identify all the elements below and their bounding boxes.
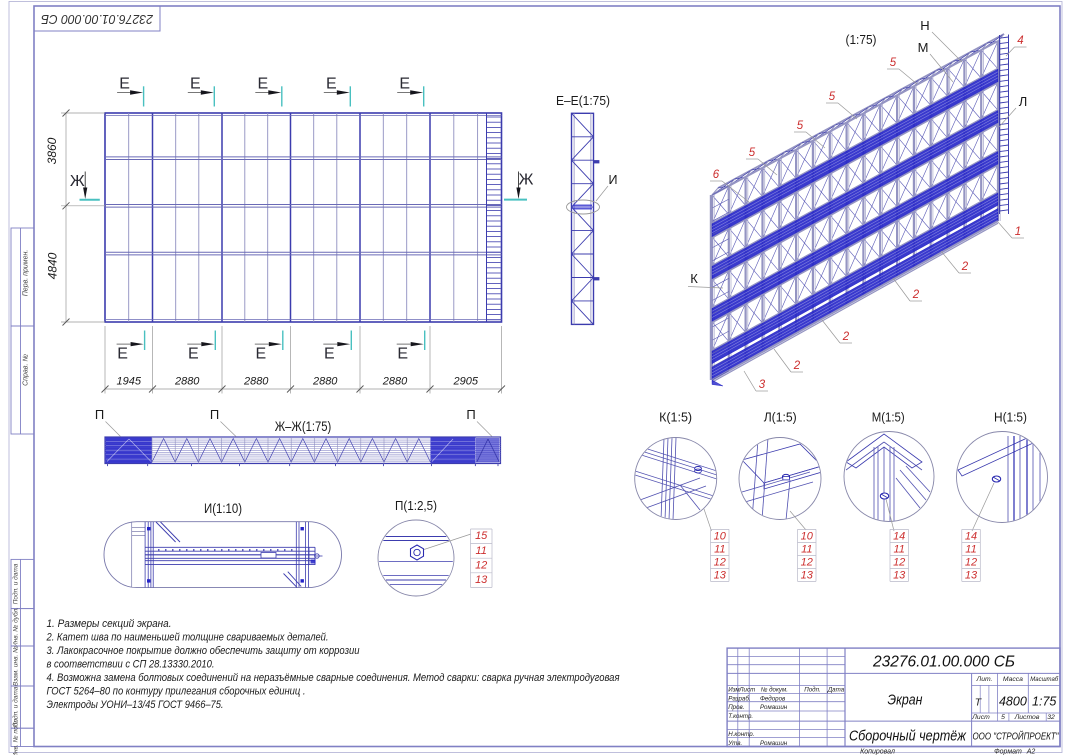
svg-text:12: 12 <box>965 557 977 569</box>
svg-text:П(1:2,5): П(1:2,5) <box>395 498 437 513</box>
svg-text:в соответствии с СП 28.13330.: в соответствии с СП 28.13330.2010. <box>47 659 215 671</box>
svg-text:П: П <box>95 407 104 422</box>
svg-text:Ж–Ж(1:75): Ж–Ж(1:75) <box>275 419 332 434</box>
svg-text:14: 14 <box>893 531 905 543</box>
svg-text:Справ. №: Справ. № <box>23 354 30 386</box>
svg-text:Ж: Ж <box>70 173 85 190</box>
svg-text:3: 3 <box>759 379 766 391</box>
svg-text:1: 1 <box>1015 226 1021 238</box>
svg-text:13: 13 <box>801 570 814 582</box>
svg-text:6: 6 <box>713 169 720 181</box>
svg-text:2: 2 <box>842 331 850 343</box>
svg-text:10: 10 <box>714 531 727 543</box>
svg-text:Взам. инв. №: Взам. инв. № <box>13 646 20 686</box>
svg-text:Федоров: Федоров <box>760 695 786 702</box>
svg-text:23276.01.00.000 СБ: 23276.01.00.000 СБ <box>41 12 154 26</box>
svg-text:14: 14 <box>965 531 977 543</box>
svg-text:Лист: Лист <box>738 686 755 693</box>
svg-text:Разраб.: Разраб. <box>728 695 750 702</box>
svg-text:Е: Е <box>190 76 201 93</box>
svg-text:5: 5 <box>829 91 836 103</box>
svg-text:12: 12 <box>475 559 487 571</box>
svg-text:4840: 4840 <box>46 252 60 279</box>
svg-text:Л: Л <box>1019 94 1028 109</box>
svg-text:Н: Н <box>920 18 929 33</box>
svg-text:23276.01.00.000 СБ: 23276.01.00.000 СБ <box>872 654 1015 671</box>
svg-text:Е: Е <box>326 76 337 93</box>
svg-text:ГОСТ 5264–80 по контуру прилег: ГОСТ 5264–80 по контуру прилегания сборо… <box>47 686 306 698</box>
svg-text:3. Лакокрасочное покрытие долж: 3. Лакокрасочное покрытие должно обеспеч… <box>47 645 360 657</box>
svg-text:3860: 3860 <box>45 137 59 164</box>
svg-text:11: 11 <box>965 544 976 556</box>
svg-text:Ромашин: Ромашин <box>760 740 788 747</box>
svg-text:5: 5 <box>749 147 756 159</box>
svg-text:Лист: Лист <box>971 714 990 721</box>
svg-text:13: 13 <box>714 570 727 582</box>
svg-text:А2: А2 <box>1026 749 1036 755</box>
svg-text:П: П <box>210 407 219 422</box>
svg-text:(1:75): (1:75) <box>846 32 877 47</box>
svg-text:11: 11 <box>714 544 725 556</box>
svg-text:Листов: Листов <box>1014 714 1040 721</box>
svg-text:Подп. и дата: Подп. и дата <box>12 563 20 604</box>
svg-text:И: И <box>609 173 618 187</box>
svg-text:13: 13 <box>475 574 488 586</box>
svg-text:32: 32 <box>1047 714 1055 721</box>
svg-text:Н(1:5): Н(1:5) <box>994 410 1027 425</box>
svg-text:М(1:5): М(1:5) <box>872 410 905 425</box>
svg-text:11: 11 <box>475 545 486 557</box>
svg-text:12: 12 <box>714 557 726 569</box>
svg-text:4: 4 <box>1017 35 1023 47</box>
svg-text:2: 2 <box>912 289 920 301</box>
svg-text:12: 12 <box>801 557 813 569</box>
svg-text:Электроды УОНИ–13/45 ГОСТ 9466: Электроды УОНИ–13/45 ГОСТ 9466–75. <box>47 699 224 711</box>
svg-text:1. Размеры секций экрана.: 1. Размеры секций экрана. <box>47 618 172 630</box>
svg-text:Подп.: Подп. <box>804 686 820 693</box>
svg-text:Масштаб: Масштаб <box>1030 675 1059 683</box>
svg-text:Е: Е <box>255 346 266 363</box>
svg-text:Е: Е <box>399 76 410 93</box>
svg-text:2880: 2880 <box>174 376 200 388</box>
svg-text:ООО "СТРОЙПРОЕКТ": ООО "СТРОЙПРОЕКТ" <box>973 730 1060 743</box>
svg-text:2: 2 <box>961 261 969 273</box>
svg-text:11: 11 <box>893 544 904 556</box>
svg-text:Е: Е <box>188 346 199 363</box>
svg-text:Утв.: Утв. <box>727 740 742 747</box>
svg-text:Ж: Ж <box>519 172 534 189</box>
svg-text:М: М <box>918 40 929 55</box>
svg-text:Масса: Масса <box>1003 676 1023 683</box>
svg-text:2880: 2880 <box>382 376 408 388</box>
svg-text:4800: 4800 <box>999 695 1027 709</box>
svg-text:13: 13 <box>893 570 906 582</box>
svg-text:2: 2 <box>793 360 801 372</box>
svg-text:5: 5 <box>1001 714 1005 721</box>
svg-text:Копировал: Копировал <box>860 749 895 755</box>
svg-text:Е: Е <box>257 76 268 93</box>
svg-text:Е: Е <box>117 346 128 363</box>
svg-text:Е: Е <box>324 346 335 363</box>
svg-text:15: 15 <box>475 530 488 542</box>
svg-text:11: 11 <box>801 544 812 556</box>
svg-text:10: 10 <box>801 531 814 543</box>
svg-text:5: 5 <box>797 120 804 132</box>
svg-text:Е: Е <box>397 346 408 363</box>
svg-text:П: П <box>466 407 475 422</box>
svg-text:Л(1:5): Л(1:5) <box>764 410 797 425</box>
svg-text:Лит.: Лит. <box>976 676 993 683</box>
svg-text:Ромашин: Ромашин <box>760 704 788 711</box>
svg-text:Экран: Экран <box>888 692 923 709</box>
svg-text:4. Возможна замена болтовых со: 4. Возможна замена болтовых соединений н… <box>47 672 620 684</box>
svg-text:К(1:5): К(1:5) <box>659 410 692 425</box>
svg-text:Е: Е <box>119 76 130 93</box>
svg-text:Перв. примен.: Перв. примен. <box>23 250 30 297</box>
svg-text:Формат: Формат <box>994 749 1022 755</box>
svg-text:Е–Е(1:75): Е–Е(1:75) <box>556 93 610 108</box>
svg-text:2880: 2880 <box>243 376 269 388</box>
svg-text:1:75: 1:75 <box>1032 695 1056 709</box>
svg-text:К: К <box>690 271 698 286</box>
svg-text:5: 5 <box>890 57 897 69</box>
svg-text:Т.контр.: Т.контр. <box>728 713 753 720</box>
svg-text:Сборочный чертёж: Сборочный чертёж <box>849 728 967 745</box>
svg-text:Дата: Дата <box>827 686 845 693</box>
svg-text:Н.контр.: Н.контр. <box>728 731 754 738</box>
svg-text:13: 13 <box>965 570 978 582</box>
svg-text:Инв. № дубл.: Инв. № дубл. <box>12 607 20 647</box>
svg-text:2905: 2905 <box>453 376 479 388</box>
svg-text:Инв. № подл.: Инв. № подл. <box>12 717 20 755</box>
svg-text:№ докум.: № докум. <box>761 686 788 693</box>
svg-text:1945: 1945 <box>117 376 142 388</box>
svg-text:12: 12 <box>893 557 905 569</box>
svg-text:2880: 2880 <box>312 376 338 388</box>
svg-text:Пров.: Пров. <box>728 704 744 711</box>
svg-text:И(1:10): И(1:10) <box>204 501 242 516</box>
svg-text:2. Катет шва по наименьшей тол: 2. Катет шва по наименьшей толщине свари… <box>46 632 329 644</box>
